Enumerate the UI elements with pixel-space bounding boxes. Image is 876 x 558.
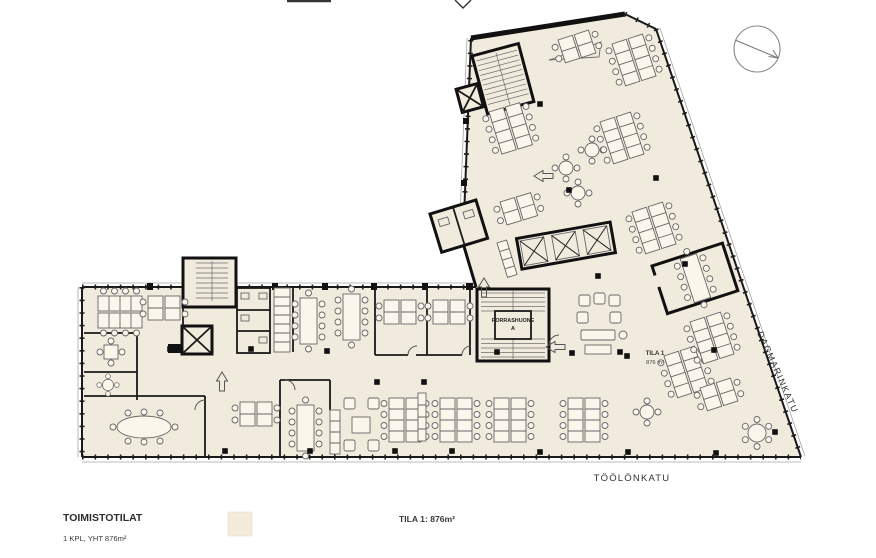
area-label: TILA 1 bbox=[646, 350, 665, 357]
facade-toolonkatu bbox=[82, 457, 801, 462]
legend: TOIMISTOTILAT 1 KPL, YHT 876m² TILA 1: 8… bbox=[63, 512, 455, 543]
stair-label-line2: A bbox=[511, 326, 515, 332]
street-label-bottom: TÖÖLÖNKATU bbox=[594, 473, 671, 484]
legend-title: TOIMISTOTILAT bbox=[63, 512, 143, 524]
wc-block bbox=[237, 288, 270, 353]
floor-plan-canvas: PORRASHUONE A bbox=[0, 0, 876, 558]
floor-plan-page: PORRASHUONE A bbox=[0, 0, 876, 558]
page-crop-marks bbox=[287, 0, 471, 8]
legend-area-total: TILA 1: 876m² bbox=[399, 514, 455, 524]
locker-wall bbox=[274, 288, 293, 352]
legend-swatch bbox=[228, 512, 252, 536]
north-arrow-icon bbox=[734, 26, 780, 72]
facade-west bbox=[78, 287, 82, 457]
legend-subtitle: 1 KPL, YHT 876m² bbox=[63, 534, 127, 543]
stair-label: PORRASHUONE bbox=[492, 318, 535, 324]
stair-core-a: PORRASHUONE A bbox=[477, 289, 559, 361]
facade-courtyard bbox=[82, 38, 476, 287]
area-label-size: 876 m² bbox=[646, 360, 664, 366]
